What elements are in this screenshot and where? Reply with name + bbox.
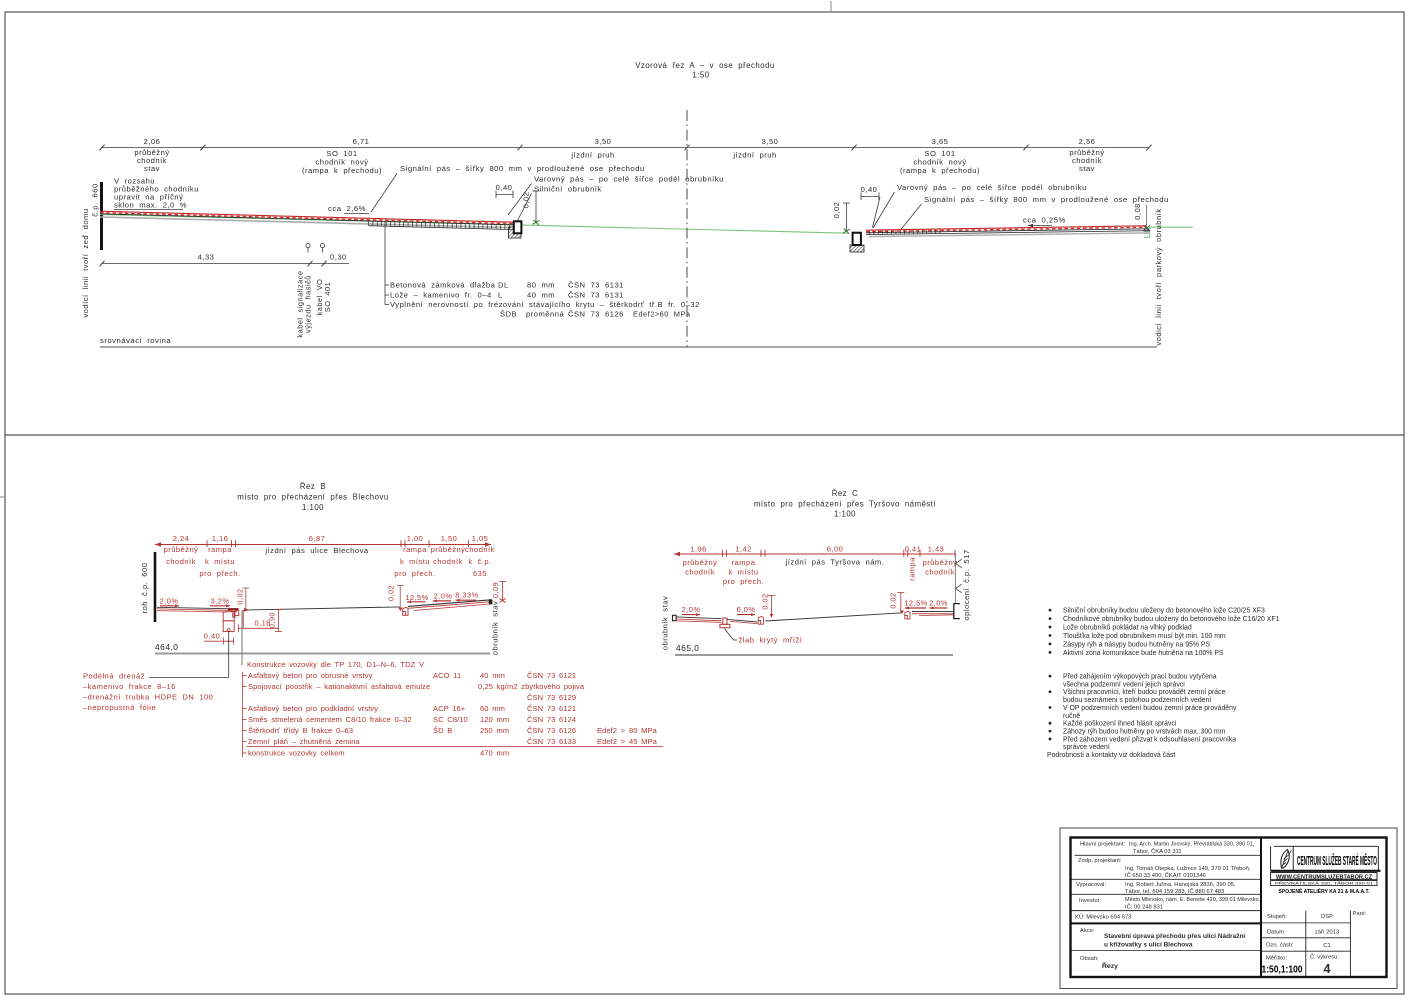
svg-text:Silniční obrubník: Silniční obrubník — [534, 185, 602, 194]
svg-text:průběžný: průběžný — [164, 545, 199, 554]
svg-text:IČ 650 33 400, ČKAIT 0101346: IČ 650 33 400, ČKAIT 0101346 — [1125, 872, 1206, 879]
svg-text:ŠDB: ŠDB — [500, 310, 517, 319]
svg-text:chodník: chodník — [925, 568, 955, 577]
svg-text:2,56: 2,56 — [1079, 137, 1096, 146]
svg-text:Řezy: Řezy — [1102, 961, 1118, 970]
svg-text:1:100: 1:100 — [302, 503, 324, 512]
svg-text:Záhozy rýh budou hutněny po vr: Záhozy rýh budou hutněny po vrstvách max… — [1063, 729, 1226, 736]
svg-text:Podélná drenáž: Podélná drenáž — [83, 672, 145, 681]
svg-text:konstrukce vozovky celkem: konstrukce vozovky celkem — [248, 749, 345, 758]
svg-text:1:50,1:100: 1:50,1:100 — [1262, 965, 1303, 976]
svg-text:0,02: 0,02 — [387, 585, 396, 601]
svg-text:464,0: 464,0 — [155, 642, 178, 652]
svg-text:8,33%: 8,33% — [455, 591, 478, 600]
svg-text:0,02: 0,02 — [888, 592, 897, 608]
svg-text:cca 2,6%: cca 2,6% — [328, 204, 366, 213]
svg-text:635: 635 — [473, 569, 487, 578]
svg-text:ČSN 73 6131: ČSN 73 6131 — [568, 281, 624, 290]
svg-text:2,06: 2,06 — [144, 137, 161, 146]
svg-text:1:100: 1:100 — [834, 510, 856, 519]
svg-text:IČ: 00 248 831: IČ: 00 248 831 — [1125, 904, 1163, 911]
svg-text:0,02: 0,02 — [522, 192, 531, 209]
svg-text:ČSN 73 6129: ČSN 73 6129 — [527, 693, 576, 702]
svg-text:Tábor, ČKA 03 311: Tábor, ČKA 03 311 — [1133, 848, 1182, 855]
svg-text:0,40: 0,40 — [496, 183, 513, 192]
svg-text:Zásypy rýh a násypy budou hutn: Zásypy rýh a násypy budou hutněny na 95%… — [1063, 641, 1210, 648]
svg-text:120 mm: 120 mm — [480, 715, 509, 724]
svg-text:1,43: 1,43 — [928, 545, 945, 554]
svg-text:1,50: 1,50 — [441, 534, 458, 543]
svg-text:cca 0,25%: cca 0,25% — [1023, 216, 1066, 225]
svg-text:(rampa k přechodu): (rampa k přechodu) — [302, 166, 382, 175]
svg-text:správce vedení: správce vedení — [1063, 744, 1110, 751]
svg-text:C1: C1 — [1323, 943, 1330, 949]
svg-text:k č.p.: k č.p. — [468, 557, 491, 566]
svg-text:0,90: 0,90 — [268, 612, 277, 628]
svg-text:Zemní pláň – zhutněná zemina: Zemní pláň – zhutněná zemina — [248, 737, 361, 746]
svg-text:Asfaltový beton pro podkladní: Asfaltový beton pro podkladní vrstvy — [248, 704, 378, 713]
svg-text:vodicí linii tvoří parkový obr: vodicí linii tvoří parkový obrubník — [1154, 208, 1163, 345]
svg-text:Silniční obrubníky budou ulože: Silniční obrubníky budou uloženy do beto… — [1063, 608, 1265, 615]
svg-text:Varovný pás – po celé šířce po: Varovný pás – po celé šířce podél obrubn… — [534, 175, 724, 184]
svg-text:oplocení č.p. 517: oplocení č.p. 517 — [962, 549, 971, 620]
svg-text:Lože obrubníků pokládat na vlh: Lože obrubníků pokládat na vlhký podklad — [1063, 623, 1192, 631]
svg-text:Signální pás – šířky 800 mm v: Signální pás – šířky 800 mm v prodloužen… — [924, 195, 1169, 204]
svg-text:12,5%: 12,5% — [405, 593, 428, 602]
svg-text:ČSN 73 6121: ČSN 73 6121 — [527, 671, 576, 680]
svg-text:budou seznámeni s polohou podz: budou seznámeni s polohou podzemních ved… — [1063, 697, 1211, 704]
svg-text:Stupeň:: Stupeň: — [1267, 914, 1287, 920]
svg-text:60 mm: 60 mm — [480, 704, 505, 713]
svg-text:Zodp. projektant:: Zodp. projektant: — [1078, 858, 1122, 864]
svg-text:40 mm: 40 mm — [480, 671, 505, 680]
svg-text:1,16: 1,16 — [212, 534, 229, 543]
svg-text:Ing. Arch. Martin Jirovský, Př: Ing. Arch. Martin Jirovský, Převrátilská… — [1129, 842, 1255, 848]
svg-text:0,40: 0,40 — [861, 185, 878, 194]
svg-text:Obsah:: Obsah: — [1080, 956, 1099, 962]
svg-text:ŠD B: ŠD B — [433, 726, 452, 735]
svg-text:Řez B: Řez B — [300, 482, 326, 491]
svg-text:KÚ: Milevsko 694 673: KÚ: Milevsko 694 673 — [1075, 914, 1131, 921]
svg-text:chodník: chodník — [166, 557, 196, 566]
svg-text:k místu: k místu — [728, 568, 758, 577]
svg-text:CENTRUM SLUŽEB STARÉ MĚSTO: CENTRUM SLUŽEB STARÉ MĚSTO — [1297, 853, 1377, 868]
svg-text:0,41: 0,41 — [905, 545, 922, 554]
svg-text:0,02: 0,02 — [832, 202, 841, 219]
svg-text:250 mm: 250 mm — [480, 726, 509, 735]
svg-text:6,71: 6,71 — [353, 137, 370, 146]
svg-text:stav: stav — [144, 164, 160, 173]
svg-text:Stavební úprava přechodu přes: Stavební úprava přechodu přes ulici Nádr… — [1104, 933, 1245, 940]
svg-text:srovnávací rovina: srovnávací rovina — [100, 336, 171, 345]
svg-text:rampa: rampa — [403, 545, 427, 554]
svg-text:DL: DL — [498, 281, 509, 290]
svg-text:ČSN 73 6126: ČSN 73 6126 — [527, 726, 576, 735]
svg-text:č.p. 660: č.p. 660 — [91, 183, 100, 216]
svg-text:vodící linii tvoří zeď domu: vodící linii tvoří zeď domu — [81, 208, 90, 317]
svg-text:rampa: rampa — [908, 557, 917, 581]
svg-text:PŘEVRÁTILSKÁ 330, TÁBOR 390 01: PŘEVRÁTILSKÁ 330, TÁBOR 390 01 — [1275, 881, 1374, 886]
svg-text:80 mm: 80 mm — [527, 281, 555, 290]
svg-text:Před záhozem vedení přizvat k: Před záhozem vedení přizvat k odsouhlase… — [1063, 736, 1236, 743]
svg-text:Konstrukce vozovky dle TP 170,: Konstrukce vozovky dle TP 170, D1–N–6, T… — [247, 660, 424, 669]
svg-text:žlab krytý mříží: žlab krytý mříží — [739, 636, 803, 645]
svg-text:0,02: 0,02 — [236, 588, 245, 604]
svg-text:k místu: k místu — [205, 557, 235, 566]
svg-text:Tloušťka lože pod obrubníkem m: Tloušťka lože pod obrubníkem musí být mi… — [1063, 633, 1226, 640]
svg-text:Měřítko:: Měřítko: — [1266, 955, 1287, 961]
svg-text:SPOJENÉ ATELIÉRY KA 21 & M.A.A: SPOJENÉ ATELIÉRY KA 21 & M.A.A.T. — [1279, 887, 1370, 895]
svg-text:Investor:: Investor: — [1079, 898, 1102, 904]
svg-text:Edef2 > 80 MPa: Edef2 > 80 MPa — [597, 726, 658, 735]
svg-text:0,08: 0,08 — [1133, 203, 1142, 220]
svg-text:místo pro přecházení přes Blec: místo pro přecházení přes Blechovu — [237, 493, 388, 502]
svg-text:u křižovatky s ulicí Blechova: u křižovatky s ulicí Blechova — [1104, 941, 1193, 948]
svg-text:SC C8/10: SC C8/10 — [433, 715, 468, 724]
svg-text:12,5%: 12,5% — [904, 599, 927, 608]
svg-text:pro přech.: pro přech. — [723, 577, 764, 586]
svg-text:DSP: DSP — [1321, 914, 1333, 920]
svg-text:Hlavní projektant:: Hlavní projektant: — [1080, 842, 1125, 848]
svg-text:proměnná: proměnná — [526, 310, 564, 319]
svg-text:ČSN 73 6131: ČSN 73 6131 — [568, 291, 624, 300]
svg-text:0,25 kg/m2 zbytkového pojiva: 0,25 kg/m2 zbytkového pojiva — [478, 682, 585, 691]
svg-text:2,24: 2,24 — [173, 534, 190, 543]
svg-text:6,0%: 6,0% — [737, 605, 756, 614]
svg-text:stav: stav — [1079, 164, 1095, 173]
svg-text:465,0: 465,0 — [676, 643, 699, 653]
svg-text:Tábor, tel. 604 159 283, IČ 88: Tábor, tel. 604 159 283, IČ 880 67 483 — [1125, 888, 1224, 895]
svg-text:Č. výkresu:: Č. výkresu: — [1310, 954, 1339, 961]
svg-text:obrubník stav: obrubník stav — [491, 601, 500, 656]
svg-text:SO 401: SO 401 — [323, 282, 332, 312]
svg-text:Štěrkodrť třídy B frakce 0–63: Štěrkodrť třídy B frakce 0–63 — [248, 726, 353, 735]
svg-text:3,2%: 3,2% — [211, 597, 230, 606]
svg-text:Datum:: Datum: — [1267, 929, 1286, 935]
svg-text:Chodníkové obrubníky budou ulo: Chodníkové obrubníky budou uloženy do be… — [1063, 616, 1280, 623]
svg-text:0,02: 0,02 — [760, 593, 769, 609]
svg-text:4,33: 4,33 — [198, 253, 215, 262]
svg-text:3,50: 3,50 — [762, 137, 779, 146]
svg-text:40 mm: 40 mm — [527, 291, 555, 300]
svg-text:1,96: 1,96 — [690, 545, 707, 554]
svg-text:0,30: 0,30 — [330, 253, 347, 262]
svg-text:Ing. Robert Juřina, Hanojská 2: Ing. Robert Juřina, Hanojská 2836, 390 0… — [1125, 882, 1236, 888]
svg-text:Všichni pracovníci, kteří budo: Všichni pracovníci, kteří budou provádět… — [1063, 689, 1226, 696]
svg-text:Betonová zámková dlažba: Betonová zámková dlažba — [390, 281, 496, 290]
svg-text:pro přech.: pro přech. — [199, 569, 240, 578]
svg-text:rampa: rampa — [732, 558, 756, 567]
svg-text:ČSN 73 6124: ČSN 73 6124 — [527, 715, 576, 724]
svg-text:Řez C: Řez C — [832, 489, 859, 498]
svg-text:ČSN 73 6121: ČSN 73 6121 — [527, 704, 576, 713]
svg-text:k místu: k místu — [400, 557, 430, 566]
svg-text:Před zahájením výkopových prac: Před zahájením výkopových prací budou vy… — [1063, 674, 1217, 681]
svg-text:0,40: 0,40 — [204, 632, 220, 641]
svg-text:průběžný: průběžný — [431, 545, 466, 554]
svg-text:1,05: 1,05 — [472, 534, 489, 543]
svg-text:–nepropustná fólie: –nepropustná fólie — [83, 703, 156, 712]
svg-text:Edef2 > 45 MPa: Edef2 > 45 MPa — [597, 737, 658, 746]
svg-text:září 2013: září 2013 — [1315, 930, 1339, 936]
svg-text:Podrobnosti a kontakty viz dok: Podrobnosti a kontakty viz dokladová čás… — [1047, 752, 1175, 759]
svg-text:2,0%: 2,0% — [929, 599, 948, 608]
svg-text:jízdní pruh: jízdní pruh — [570, 151, 614, 160]
svg-text:obrubník stav: obrubník stav — [661, 596, 670, 651]
svg-text:Aktivní zóna komunikace bude h: Aktivní zóna komunikace bude hutněna na … — [1063, 650, 1224, 657]
svg-text:3,50: 3,50 — [595, 137, 612, 146]
svg-text:6,00: 6,00 — [827, 545, 844, 554]
svg-text:ČSN 73 6133: ČSN 73 6133 — [527, 737, 576, 746]
svg-text:1:50: 1:50 — [692, 71, 709, 80]
svg-text:Asfaltový beton pro obrusné vr: Asfaltový beton pro obrusné vrstvy — [248, 671, 373, 680]
svg-text:V OP podzemních vedení budou z: V OP podzemních vedení budou zemní práce… — [1063, 705, 1237, 712]
svg-text:L: L — [498, 291, 503, 300]
svg-text:Paré:: Paré: — [1353, 911, 1367, 917]
svg-text:Akce:: Akce: — [1080, 928, 1095, 934]
svg-text:chodník: chodník — [433, 557, 463, 566]
svg-text:roh č.p. 600: roh č.p. 600 — [140, 563, 149, 614]
svg-text:Město Milevsko, nám. E. Beneše: Město Milevsko, nám. E. Beneše 420, 399 … — [1125, 897, 1261, 903]
svg-text:sklon max. 2,0 %: sklon max. 2,0 % — [114, 201, 187, 210]
svg-text:ACP 16+: ACP 16+ — [433, 704, 466, 713]
svg-text:pro přech.: pro přech. — [394, 569, 435, 578]
svg-text:Vzorová řez A – v ose přechodu: Vzorová řez A – v ose přechodu — [635, 61, 775, 70]
svg-text:jízdní pás Tyršova nám.: jízdní pás Tyršova nám. — [785, 558, 885, 567]
svg-text:1,00: 1,00 — [407, 534, 424, 543]
svg-text:místo pro přecházení přes Tyrš: místo pro přecházení přes Tyršovo náměst… — [754, 500, 937, 509]
svg-text:jízdní pás ulice Blechova: jízdní pás ulice Blechova — [264, 546, 369, 555]
svg-text:výjezdu hasičů: výjezdu hasičů — [304, 275, 313, 333]
svg-text:–kamenivo frakce 8–16: –kamenivo frakce 8–16 — [83, 682, 176, 691]
svg-text:jízdní pruh: jízdní pruh — [732, 151, 776, 160]
svg-text:2,0%: 2,0% — [682, 605, 701, 614]
svg-text:chodník: chodník — [465, 545, 495, 554]
svg-text:–drenážní trubka HDPE DN 100: –drenážní trubka HDPE DN 100 — [83, 693, 213, 702]
svg-text:Vypracoval:: Vypracoval: — [1076, 882, 1106, 888]
svg-text:Každé poškození ihned hlásit s: Každé poškození ihned hlásit správci — [1063, 721, 1177, 728]
svg-text:Spojovací poostřik – kationakt: Spojovací poostřik – kationaktivní asfal… — [248, 682, 430, 691]
svg-text:2,0%: 2,0% — [434, 591, 453, 600]
svg-text:Ing. Tomáš Otepka, Lužnice 149: Ing. Tomáš Otepka, Lužnice 149, 379 01 T… — [1125, 866, 1251, 872]
svg-text:průběžný: průběžný — [923, 558, 958, 567]
svg-text:4: 4 — [1324, 962, 1331, 976]
svg-text:WWW.CENTRUMSLUZEBTABOR.CZ: WWW.CENTRUMSLUZEBTABOR.CZ — [1276, 874, 1373, 880]
svg-text:(rampa k přechodu): (rampa k přechodu) — [900, 166, 980, 175]
svg-text:Vyplnění nerovností po frézová: Vyplnění nerovností po frézování stávají… — [390, 300, 700, 309]
svg-text:Signální pás – šířky 800 mm v: Signální pás – šířky 800 mm v prodloužen… — [400, 164, 645, 173]
svg-text:1,42: 1,42 — [735, 545, 752, 554]
svg-text:průběžný: průběžný — [683, 558, 718, 567]
svg-text:ČSN 73 6126: ČSN 73 6126 — [568, 310, 624, 319]
svg-text:Lože – kamenivo fr. 0–4: Lože – kamenivo fr. 0–4 — [390, 291, 492, 300]
svg-text:Ozn. části:: Ozn. části: — [1266, 942, 1294, 948]
svg-text:chodník: chodník — [685, 568, 715, 577]
svg-text:ručně: ručně — [1063, 713, 1080, 720]
svg-text:2,0%: 2,0% — [160, 597, 179, 606]
svg-text:všechna podzemní vedení jejich: všechna podzemní vedení jejich správci — [1063, 681, 1185, 688]
svg-text:Varovný pás – po celé šířce po: Varovný pás – po celé šířce podél obrubn… — [897, 183, 1087, 192]
svg-text:6,87: 6,87 — [309, 534, 326, 543]
svg-text:ACO 11: ACO 11 — [433, 671, 461, 680]
svg-text:3,65: 3,65 — [932, 137, 949, 146]
svg-text:470 mm: 470 mm — [480, 749, 509, 758]
svg-text:Směs stmelená cementem C8/10 f: Směs stmelená cementem C8/10 frakce 0–32 — [248, 715, 412, 724]
svg-text:Edef2>60 MPa: Edef2>60 MPa — [633, 310, 691, 319]
svg-text:rampa: rampa — [208, 545, 232, 554]
svg-text:0,09: 0,09 — [491, 582, 500, 598]
